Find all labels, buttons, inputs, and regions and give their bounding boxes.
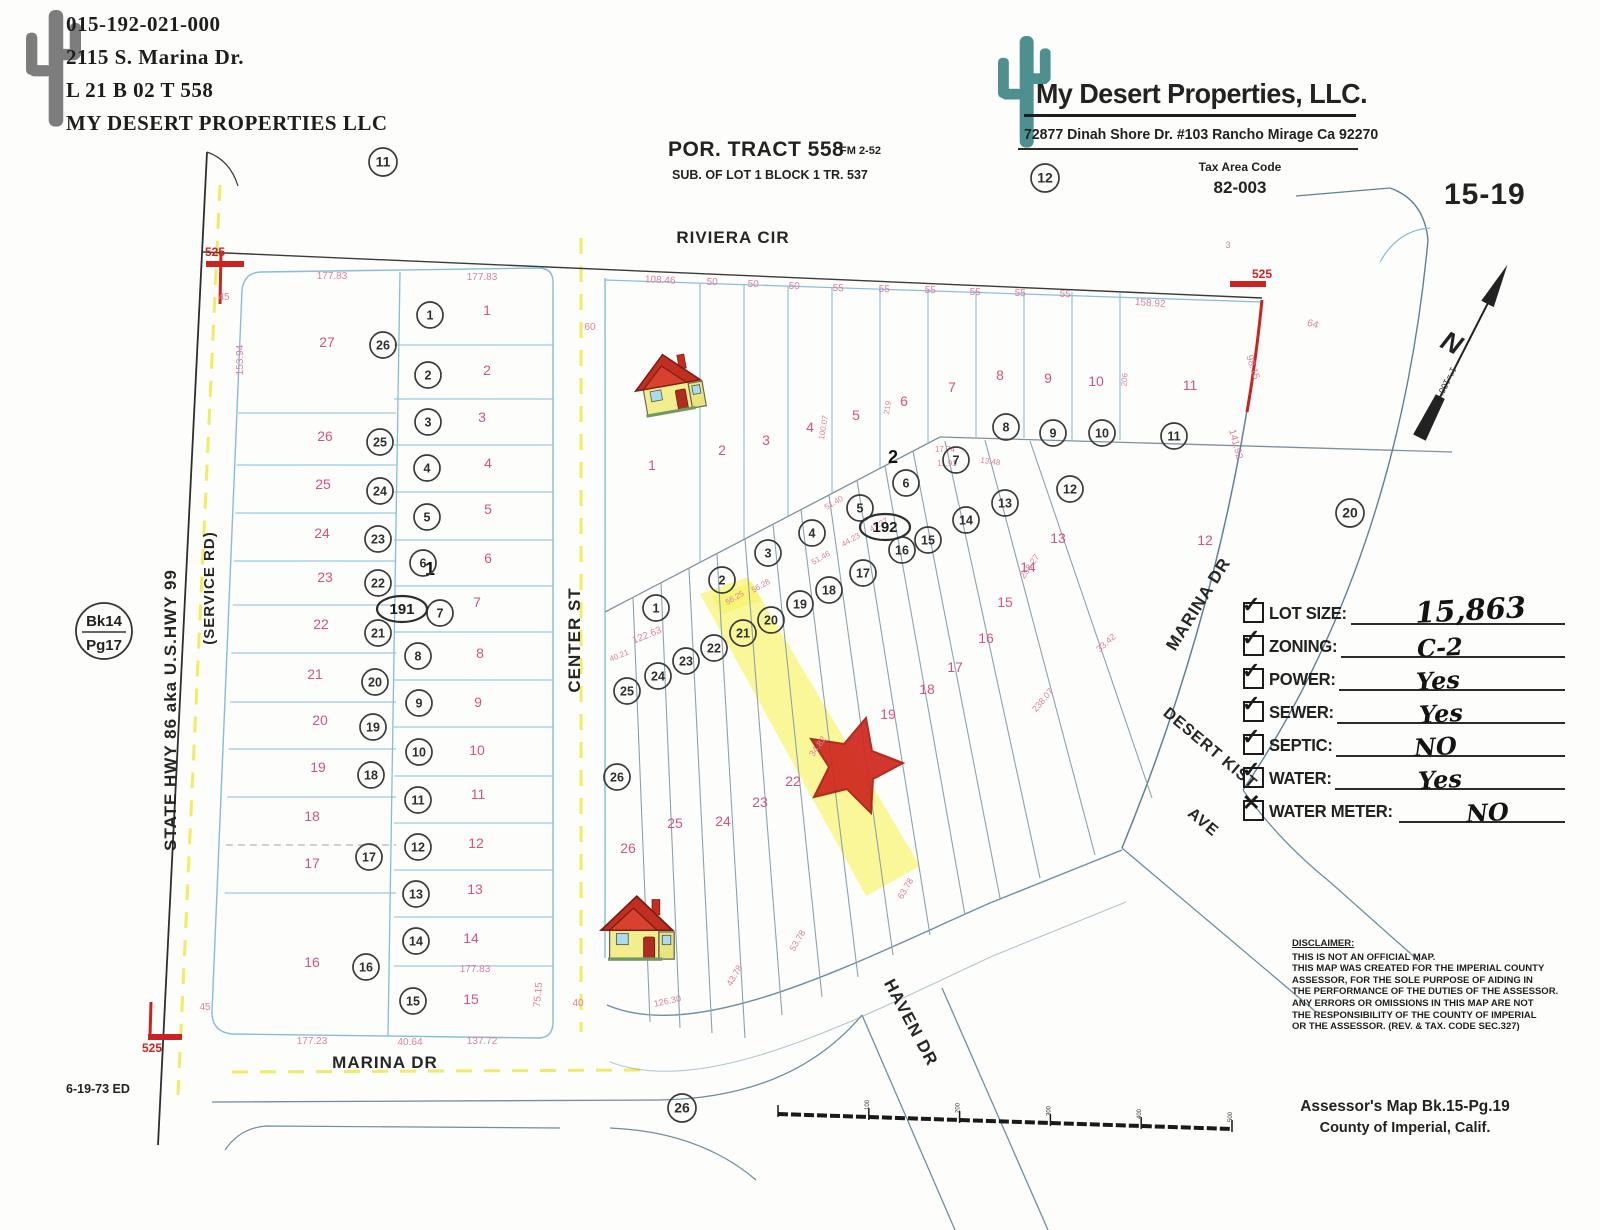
scale-bar-label: 300 (1046, 1105, 1052, 1116)
circled-lot-number: 5 (857, 502, 864, 516)
circled-lot-number: 24 (651, 670, 665, 684)
checkmark-icon: ✓ (1242, 757, 1260, 783)
disclaimer-line: ASSESSOR, FOR THE SOLE PURPOSE OF AIDING… (1292, 975, 1560, 987)
lot-number-pink: 23 (752, 794, 768, 810)
circled-lot-number: 8 (1003, 421, 1010, 435)
dimension-label: 122.63 (631, 625, 664, 647)
circled-lot-number: 13 (998, 497, 1012, 511)
owner-block: 015-192-021-000 2115 S. Marina Dr. L 21 … (66, 8, 388, 140)
dimension-label: 55 (1014, 288, 1026, 300)
lot-number-pink: 10 (1088, 373, 1104, 389)
dimension-label: 33.42 (1094, 632, 1117, 655)
circled-lot-number: 3 (425, 416, 432, 430)
dimension-label: 50 (706, 277, 718, 289)
dimension-label: 126.30 (653, 993, 682, 1009)
disclaimer-title: DISCLAIMER: (1292, 938, 1560, 950)
checklist-row: ✓ZONING:C-2 (1243, 625, 1565, 658)
circled-lot-number: 1 (653, 602, 660, 616)
checklist-row: ✓SEPTIC:NO (1243, 724, 1565, 757)
dimension-label: 55 (969, 287, 981, 299)
dimension-label: 219 (882, 400, 893, 415)
circled-lot-number: 2 (719, 574, 726, 588)
checklist-row: ✓SEWER:Yes (1243, 691, 1565, 724)
lot-number-pink: 3 (762, 432, 770, 448)
lot-number-pink: 16 (978, 630, 994, 646)
parcel-number: 015-192-021-000 (66, 8, 388, 41)
company-name: My Desert Properties, LLC. (1036, 78, 1367, 110)
dimension-label: 13.48 (980, 456, 1002, 468)
circled-lot-number: 15 (921, 534, 935, 548)
svg-text:N: N (1436, 325, 1467, 361)
checklist-label: WATER METER: (1269, 801, 1393, 822)
circled-lot-number: 17 (856, 567, 870, 581)
parcel-lot-block-tract: L 21 B 02 T 558 (66, 74, 388, 107)
checklist-label: ZONING: (1269, 636, 1337, 657)
circled-lot-number: 16 (359, 961, 373, 975)
lot-number-pink: 19 (880, 706, 896, 722)
checkmark-icon: ✕ (1242, 790, 1260, 816)
checklist-underline: NO (1336, 727, 1565, 757)
dimension-label: 238.07 (1030, 686, 1055, 714)
lot-line (1030, 441, 1152, 798)
checkbox-icon: ✓ (1243, 734, 1264, 755)
dimension-label: 50 (747, 279, 759, 291)
checkbox-icon: ✓ (1243, 701, 1264, 722)
checkbox-icon: ✓ (1243, 767, 1264, 788)
checkmark-icon: ✓ (1242, 724, 1260, 750)
dimension-label: 108.46 (645, 274, 677, 287)
checklist-underline: Yes (1339, 661, 1565, 691)
circled-lot-number: 11 (1167, 430, 1180, 444)
dimension-label: 177.83 (317, 271, 348, 282)
lot-number-pink: 12 (468, 835, 484, 851)
circled-lot-number: 8 (415, 650, 422, 664)
dimension-label: 177.83 (460, 964, 491, 975)
lot-line (661, 583, 680, 1028)
company-rule (1024, 114, 1356, 117)
circled-lot-number: 12 (411, 841, 425, 855)
circled-lot-number: 22 (371, 577, 385, 591)
street-label: CENTER ST (565, 587, 584, 692)
checkbox-icon: ✕ (1243, 800, 1264, 821)
checklist-underline: C-2 (1341, 628, 1565, 658)
checklist-row: ✕WATER METER:NO (1243, 790, 1565, 823)
svg-text:Bk14: Bk14 (86, 613, 123, 630)
checkmark-icon: ✓ (1242, 625, 1260, 651)
scale-bar-label: 100 (865, 1099, 871, 1110)
dimension-label: 55 (1059, 289, 1071, 301)
lot-number-pink: 5 (852, 407, 860, 423)
circled-lot-number: 9 (416, 697, 423, 711)
tract-title: POR. TRACT 558 (668, 138, 844, 162)
lot-number-pink: 4 (484, 455, 492, 471)
lot-number-pink: 24 (314, 525, 330, 541)
lot-number-pink: 10 (469, 742, 485, 758)
dimension-label: 45 (218, 292, 230, 303)
circled-lot-number: 12 (1063, 483, 1077, 497)
circled-lot-number: 4 (809, 527, 816, 541)
street-label: AVE (1184, 805, 1222, 840)
circled-lot-number: 26 (376, 339, 390, 353)
circled-lot-number: 26 (674, 1100, 690, 1116)
dimension-label: 40 (572, 998, 584, 1009)
circled-lot-number: 22 (707, 642, 721, 656)
scale-bar-label: 500 (1228, 1111, 1234, 1122)
dimension-label: 141.92 (1226, 428, 1245, 461)
dimension-label: 44.23 (840, 531, 862, 549)
checkbox-icon: ✓ (1243, 668, 1264, 689)
circled-lot-number: 18 (822, 584, 836, 598)
checklist-underline: NO (1399, 793, 1565, 823)
lot-number-pink: 20 (312, 712, 328, 728)
lot-number-pink: 2 (718, 442, 726, 458)
dimension-label: 55 (832, 283, 844, 295)
parcel-owner: MY DESERT PROPERTIES LLC (66, 107, 388, 140)
circled-lot-number: 3 (765, 547, 772, 561)
lot-number-pink: 19 (310, 759, 326, 775)
checkbox-icon: ✓ (1243, 602, 1264, 623)
lot-number-pink: 7 (473, 594, 481, 610)
lot-number-pink: 6 (484, 550, 492, 566)
lot-number-pink: 24 (715, 813, 731, 829)
dimension-label: 56.28 (750, 577, 772, 595)
lot-number-pink: 23 (317, 569, 333, 585)
lot-number-pink: 17 (947, 659, 963, 675)
lot-number-pink: 1 (648, 457, 656, 473)
circled-lot-number: 7 (437, 607, 444, 621)
dimension-label: 40.21 (608, 648, 630, 664)
dimension-label: 100.07 (817, 414, 830, 440)
survey-label-red: 525 (142, 1041, 162, 1055)
checklist-label: SEWER: (1269, 702, 1334, 723)
lot-number-pink: 12 (1197, 532, 1213, 548)
checklist-row: ✓POWER:Yes (1243, 658, 1565, 691)
dimension-label: 50 (788, 281, 800, 293)
street-label: MARINA DR (1162, 554, 1234, 654)
dimension-label: 75.15 (532, 981, 545, 1007)
scale-bar-label: 200 (956, 1102, 962, 1113)
checklist-handwritten-value: 15,863 (1414, 590, 1527, 630)
checklist-label: SEPTIC: (1269, 735, 1333, 756)
disclaimer-line: THE PERFORMANCE OF THE DUTIES OF THE ASS… (1292, 986, 1560, 998)
map-date-note: 6-19-73 ED (66, 1082, 130, 1096)
tract-subtitle: SUB. OF LOT 1 BLOCK 1 TR. 537 (672, 168, 868, 182)
assessor-map-reference: Assessor's Map Bk.15-Pg.19 (1250, 1098, 1560, 1116)
sheet-number: 15-19 (1444, 178, 1526, 212)
checklist-underline: Yes (1335, 760, 1565, 790)
svg-text:1"=100': 1"=100' (1436, 365, 1459, 397)
circled-lot-number: 6 (420, 557, 427, 571)
dimension-label: 60 (584, 322, 596, 333)
lot-number-pink: 3 (478, 409, 486, 425)
circled-lot-number: 17 (362, 851, 376, 865)
circled-lot-number: 7 (953, 454, 960, 468)
checklist-label: WATER: (1269, 768, 1332, 789)
property-checklist: ✓LOT SIZE:15,863✓ZONING:C-2✓POWER:Yes✓SE… (1243, 592, 1565, 823)
dimension-label: 3 (1225, 240, 1230, 250)
county-reference: County of Imperial, Calif. (1250, 1120, 1560, 1136)
dimension-label: 55 (924, 285, 936, 297)
tax-area-label: Tax Area Code (1180, 160, 1300, 174)
disclaimer-line: THIS IS NOT AN OFFICIAL MAP. (1292, 952, 1560, 964)
circled-lot-number: 12 (1037, 170, 1053, 186)
disclaimer-block: DISCLAIMER: THIS IS NOT AN OFFICIAL MAP.… (1292, 938, 1560, 1033)
survey-label-red: 525 (205, 245, 225, 259)
block-number: 191 (389, 601, 414, 618)
circled-lot-number: 14 (959, 514, 973, 528)
lot-number-pink: 15 (997, 594, 1013, 610)
circled-lot-number: 19 (366, 721, 380, 735)
circled-lot-number: 26 (610, 771, 624, 785)
checkbox-icon: ✓ (1243, 635, 1264, 656)
lot-number-pink: 25 (315, 476, 331, 492)
lot-number-pink: 21 (307, 666, 323, 682)
street-label: RIVIERA CIR (676, 228, 789, 247)
circled-lot-number: 25 (373, 436, 387, 450)
circled-lot-number: 20 (1342, 505, 1358, 521)
dimension-label: 63.78 (895, 876, 915, 901)
circled-lot-number: 6 (903, 477, 910, 491)
checklist-row: ✓LOT SIZE:15,863 (1243, 592, 1565, 625)
dimension-label: 206 (1119, 372, 1129, 387)
lot-number-pink: 5 (484, 501, 492, 517)
dimension-label: 177.23 (297, 1036, 328, 1047)
lot-number-pink: 6 (900, 393, 908, 409)
dimension-label: 137.72 (467, 1036, 498, 1047)
lot-number-pink: 17 (304, 855, 320, 871)
circled-lot-number: 10 (412, 746, 426, 760)
lot-number-pink: 11 (471, 786, 486, 802)
lot-number-pink: 18 (304, 808, 320, 824)
circled-lot-number: 24 (373, 485, 387, 499)
circled-lot-number: 20 (764, 614, 778, 628)
disclaimer-line: ANY ERRORS OR OMISSIONS IN THIS MAP ARE … (1292, 998, 1560, 1010)
book-page-reference: Bk14 Pg17 (76, 603, 132, 659)
checkmark-icon: ✓ (1242, 691, 1260, 717)
checklist-underline: Yes (1337, 694, 1565, 724)
lot-number-pink: 11 (1183, 377, 1198, 393)
checklist-row: ✓WATER:Yes (1243, 757, 1565, 790)
street-label: (SERVICE RD) (201, 531, 218, 644)
dimension-label: 153.94 (235, 344, 246, 375)
circled-lot-number: 16 (895, 544, 909, 558)
street-label: HAVEN DR (880, 976, 942, 1069)
street-label: STATE HWY 86 aka U.S.HWY 99 (161, 569, 180, 851)
lot-number-pink: 4 (806, 419, 814, 435)
lot-number-pink: 1 (483, 302, 491, 318)
circled-lot-number: 9 (1050, 427, 1057, 441)
circled-lot-number: 4 (424, 462, 431, 476)
handwritten-number: 2 (888, 447, 898, 467)
company-rule (1018, 148, 1358, 150)
tract-fm-number: FM 2-52 (840, 145, 881, 157)
dimension-label: 40.64 (397, 1037, 422, 1048)
lot-number-pink: 22 (785, 773, 801, 789)
disclaimer-line: THE RESPONSIBILITY OF THE COUNTY OF IMPE… (1292, 1010, 1560, 1022)
dimension-label: 45 (199, 1002, 211, 1013)
dimension-label: 51.46 (810, 549, 832, 567)
north-arrow: N 1"=100' (1398, 254, 1514, 441)
circled-lot-number: 14 (409, 935, 423, 949)
lot-number-pink: 25 (667, 815, 683, 831)
lot-number-pink: 13 (467, 881, 483, 897)
circled-lot-number: 20 (368, 676, 382, 690)
company-address: 72877 Dinah Shore Dr. #103 Rancho Mirage… (1024, 126, 1378, 143)
circled-lot-number: 21 (371, 627, 385, 641)
circled-lot-number: 15 (406, 995, 420, 1009)
lot-number-pink: 2 (483, 362, 491, 378)
circled-lot-number: 19 (793, 598, 807, 612)
dimension-label: 98.15 (1243, 354, 1261, 382)
dimension-label: 55 (878, 284, 890, 296)
circled-lot-number: 13 (409, 888, 423, 902)
dimension-label: 158.92 (1135, 297, 1167, 310)
lot-number-pink: 22 (313, 616, 329, 632)
circled-lot-number: 2 (425, 369, 432, 383)
circled-lot-number: 23 (679, 655, 693, 669)
dimension-label: 53.78 (787, 928, 807, 953)
house-icon (601, 896, 674, 961)
checklist-underline: 15,863 (1351, 595, 1565, 625)
lot-number-pink: 9 (474, 694, 482, 710)
circled-lot-number: 5 (424, 511, 431, 525)
circled-lot-number: 18 (364, 769, 378, 783)
circled-lot-number: 25 (620, 685, 634, 699)
lot-number-pink: 8 (476, 645, 484, 661)
lot-number-pink: 26 (317, 428, 333, 444)
lot-number-pink: 18 (919, 681, 935, 697)
tax-area-code: 82-003 (1180, 178, 1300, 198)
circled-lot-number: 23 (371, 533, 385, 547)
block-number: 192 (872, 519, 897, 536)
lot-number-pink: 26 (620, 840, 636, 856)
lot-number-pink: 15 (463, 991, 479, 1007)
circled-lot-number: 1 (427, 309, 434, 323)
scale-bar-line (778, 1114, 1232, 1129)
circled-lot-number: 10 (1095, 427, 1109, 441)
assessor-map-page: Bk14 Pg17 N 1"=100' 100200300400500 RIVI… (0, 0, 1600, 1230)
dimension-label: 177.83 (467, 272, 498, 283)
checkmark-icon: ✓ (1242, 658, 1260, 684)
circled-lot-number: 21 (736, 627, 750, 641)
lot-line (689, 568, 712, 1033)
circled-lot-number: 11 (411, 794, 424, 808)
house-icon (630, 349, 706, 419)
lot-number-pink: 16 (304, 954, 320, 970)
lot-number-pink: 27 (319, 334, 335, 350)
scale-bar-label: 400 (1137, 1108, 1143, 1119)
checklist-label: POWER: (1269, 669, 1336, 690)
lot-number-pink: 7 (948, 379, 956, 395)
svg-text:Pg17: Pg17 (86, 637, 122, 654)
street-label: MARINA DR (332, 1053, 438, 1072)
lot-number-pink: 8 (996, 367, 1004, 383)
disclaimer-line: THIS MAP WAS CREATED FOR THE IMPERIAL CO… (1292, 963, 1560, 975)
survey-label-red: 525 (1252, 267, 1272, 281)
scale-bar: 100200300400500 (778, 1099, 1234, 1132)
dimension-label: 64 (1306, 318, 1320, 332)
lot-number-pink: 14 (463, 930, 479, 946)
lot-number-pink: 9 (1044, 370, 1052, 386)
lot-number-pink: 13 (1050, 530, 1066, 546)
checklist-handwritten-value: NO (1465, 797, 1509, 828)
checkmark-icon: ✓ (1242, 592, 1260, 618)
checklist-label: LOT SIZE: (1269, 603, 1347, 624)
parcel-address: 2115 S. Marina Dr. (66, 41, 388, 74)
disclaimer-line: OR THE ASSESSOR. (REV. & TAX. CODE SEC.3… (1292, 1021, 1560, 1033)
circled-lot-number: 11 (376, 154, 391, 170)
